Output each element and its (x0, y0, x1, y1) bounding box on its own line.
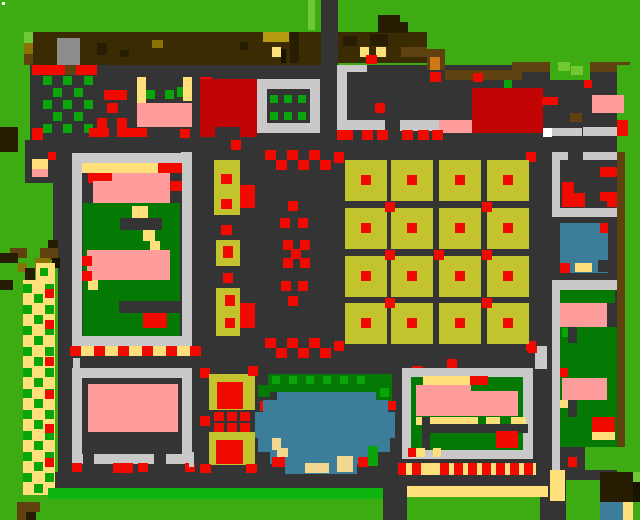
town-map-canvas[interactable] (0, 0, 640, 520)
game-screen (0, 0, 640, 520)
